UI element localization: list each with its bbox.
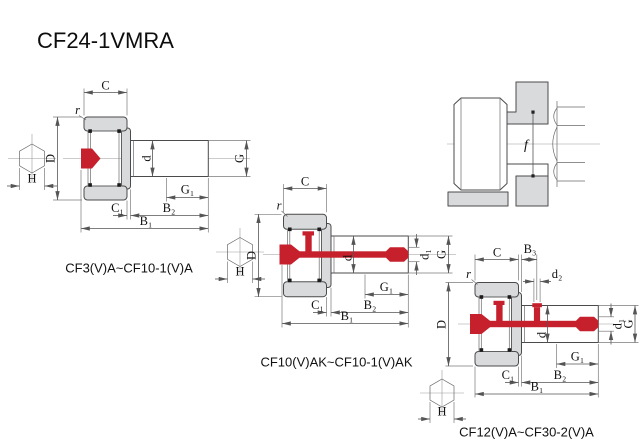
technical-drawing: CF24-1VMRA [0, 0, 640, 440]
dim-label-r: r [277, 199, 282, 213]
dim-label-c: C [301, 175, 309, 189]
dim-label-f: f [524, 138, 530, 153]
diagram-cf10ak: C r D H d d₁ G G₁ C₁ B₂ B₁ CF10(V)AK~CF1… [215, 175, 456, 370]
dim-label-d2: d₂ [552, 267, 563, 281]
dim-label-d1: d₁ [418, 249, 432, 260]
outer-ring-top [475, 283, 519, 298]
dim-label-b1: B₁ [140, 214, 153, 228]
dim-label-c1: C₁ [311, 298, 324, 312]
diagram-cf3a: C r D H d G G₁ C₁ B₂ B₁ CF3(V)A~CF10-1(V… [7, 79, 251, 276]
dim-label-c1: C₁ [502, 368, 515, 382]
dim-label-b2: B₂ [554, 368, 567, 382]
dim-label-d-stud: d [140, 155, 154, 162]
dim-label-g1: G₁ [380, 280, 393, 294]
dim-label-c: C [101, 79, 109, 93]
housing-lower [507, 164, 548, 206]
dim-label-h: H [437, 405, 446, 419]
dim-label-d-stud: d [341, 254, 355, 261]
dim-label-g1: G₁ [181, 183, 194, 197]
dim-label-h: H [235, 265, 244, 279]
diagram-cf12a: C B₃ d₂ r D H d d₁ G G₁ C₁ B₂ B₁ CF12(V)… [418, 242, 639, 440]
dim-label-g: G [435, 250, 449, 259]
catalog-page: CF24-1VMRA [0, 0, 640, 440]
dim-label-b3: B₃ [524, 242, 537, 256]
dim-label-b2: B₂ [163, 201, 176, 215]
outer-ring-top [84, 117, 127, 131]
hex-socket [81, 149, 101, 169]
dim-label-b1: B₁ [531, 380, 544, 394]
outer-ring-bottom [284, 282, 327, 297]
dim-label-b1: B₁ [341, 309, 354, 323]
diagram-caption: CF3(V)A~CF10-1(V)A [65, 261, 193, 276]
stud-flange [122, 128, 131, 189]
diagram-caption: CF12(V)A~CF30-2(V)A [459, 425, 594, 440]
dim-label-d-outer: D [44, 154, 58, 163]
dim-label-g1: G₁ [571, 350, 584, 364]
outer-ring-top [284, 214, 327, 229]
mounting-view: f [447, 82, 600, 206]
dim-label-g: G [233, 154, 247, 163]
housing-upper [507, 82, 548, 124]
track-rail [448, 192, 508, 206]
dim-label-c: C [493, 246, 501, 260]
dim-label-r: r [466, 267, 471, 281]
roller-outline [454, 98, 507, 190]
dim-label-g: G [622, 319, 636, 328]
diagram-caption: CF10(V)AK~CF10-1(V)AK [260, 355, 412, 370]
outer-ring-bottom [475, 352, 519, 367]
dim-label-d-outer: D [245, 251, 259, 260]
page-title: CF24-1VMRA [37, 28, 174, 53]
dim-label-c1: C₁ [111, 201, 124, 215]
outer-ring-bottom [84, 186, 127, 200]
dim-label-h: H [27, 172, 36, 186]
dim-label-d-stud: d [535, 331, 549, 338]
dim-label-d-outer: D [435, 320, 449, 329]
dim-label-r: r [75, 103, 80, 117]
dim-label-b2: B₂ [364, 298, 377, 312]
